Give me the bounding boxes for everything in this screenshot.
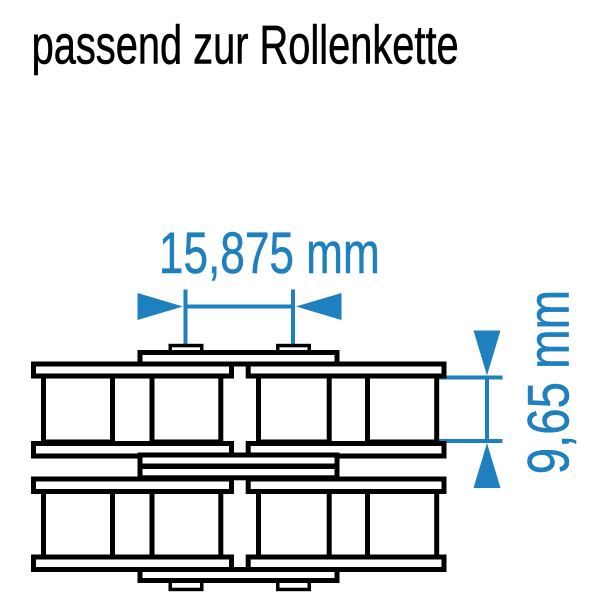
svg-text:passend zur Rollenkette: passend zur Rollenkette	[32, 15, 459, 76]
svg-text:15,875 mm: 15,875 mm	[159, 220, 380, 285]
svg-text:9,65 mm: 9,65 mm	[517, 290, 582, 474]
